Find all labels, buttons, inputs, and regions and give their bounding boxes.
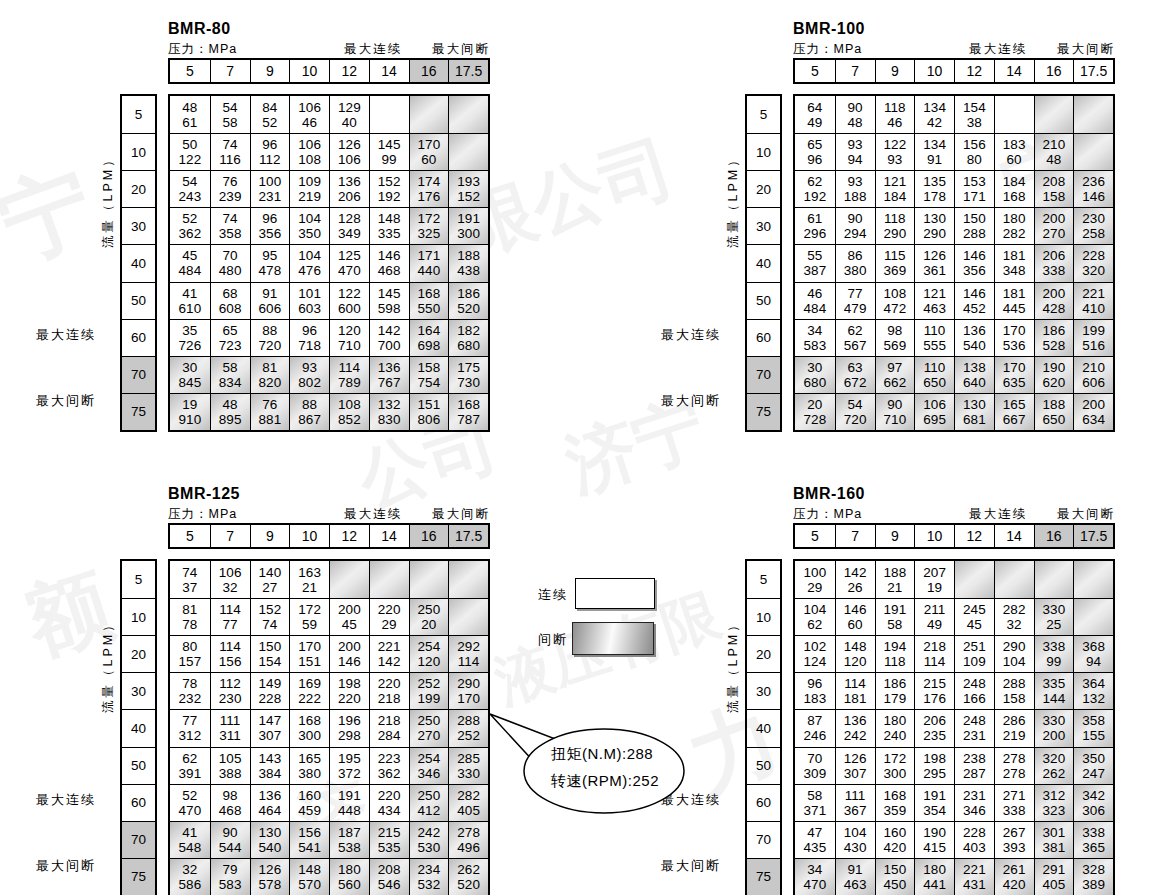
torque-value: 330 bbox=[1043, 602, 1066, 617]
data-cell: 54243 bbox=[170, 170, 210, 207]
data-cell: 14027 bbox=[250, 561, 290, 598]
data-cell: 98569 bbox=[875, 319, 915, 356]
speed-value: 120 bbox=[418, 654, 441, 669]
speed-value: 94 bbox=[848, 152, 863, 167]
torque-value: 221 bbox=[963, 862, 986, 877]
data-cell: 122600 bbox=[329, 282, 369, 319]
torque-value: 143 bbox=[259, 751, 282, 766]
flow-label-cell: 30 bbox=[122, 207, 155, 244]
speed-value: 320 bbox=[1082, 263, 1105, 278]
pressure-header-cell: 12 bbox=[954, 60, 994, 82]
data-cell: 152192 bbox=[369, 170, 409, 207]
speed-value: 388 bbox=[219, 766, 242, 781]
speed-value: 192 bbox=[804, 189, 827, 204]
data-cell: 24545 bbox=[954, 598, 994, 635]
flow-label-cell: 20 bbox=[122, 635, 155, 672]
data-cell: 184168 bbox=[994, 170, 1034, 207]
speed-value: 262 bbox=[1043, 766, 1066, 781]
torque-value: 128 bbox=[338, 211, 361, 226]
data-cell: 62567 bbox=[835, 319, 875, 356]
speed-value: 718 bbox=[298, 338, 321, 353]
legend-intermittent-label: 间断 bbox=[538, 631, 568, 649]
torque-value: 98 bbox=[223, 788, 238, 803]
speed-value: 578 bbox=[259, 877, 282, 892]
table-bmr-100: BMR-100 压力：MPa 最大连续 最大间断 5791012141617.5… bbox=[653, 20, 1115, 432]
data-cell: 148335 bbox=[369, 207, 409, 244]
flow-label-cell: 75 bbox=[122, 858, 155, 895]
speed-value: 380 bbox=[298, 766, 321, 781]
torque-value: 330 bbox=[1043, 713, 1066, 728]
data-cell: 200270 bbox=[1034, 207, 1074, 244]
torque-value: 191 bbox=[457, 211, 480, 226]
torque-value: 76 bbox=[262, 397, 277, 412]
data-cell: 120710 bbox=[329, 319, 369, 356]
torque-value: 122 bbox=[338, 286, 361, 301]
data-cell: 96356 bbox=[250, 207, 290, 244]
flow-label-cell: 20 bbox=[747, 635, 780, 672]
data-cell: 36894 bbox=[1073, 635, 1113, 672]
torque-value: 108 bbox=[884, 286, 907, 301]
data-cell: 221142 bbox=[369, 635, 409, 672]
torque-value: 114 bbox=[844, 676, 866, 691]
data-cell: 142700 bbox=[369, 319, 409, 356]
torque-value: 172 bbox=[298, 602, 321, 617]
speed-value: 309 bbox=[804, 766, 827, 781]
data-cell: 136206 bbox=[329, 170, 369, 207]
torque-value: 364 bbox=[1082, 676, 1105, 691]
speed-value: 789 bbox=[338, 375, 361, 390]
torque-value: 320 bbox=[1043, 751, 1066, 766]
torque-value: 180 bbox=[884, 713, 907, 728]
data-cell: 146452 bbox=[954, 282, 994, 319]
data-cell bbox=[1073, 96, 1113, 133]
data-cell: 165667 bbox=[994, 393, 1034, 430]
flow-label-cell: 10 bbox=[747, 133, 780, 170]
torque-value: 62 bbox=[807, 174, 822, 189]
speed-value: 109 bbox=[963, 654, 986, 669]
speed-value: 405 bbox=[1043, 877, 1066, 892]
speed-value: 60 bbox=[1007, 152, 1022, 167]
callout-speed-value: 转速(RPM):252 bbox=[551, 767, 659, 794]
torque-value: 106 bbox=[219, 565, 242, 580]
speed-value: 307 bbox=[259, 728, 282, 743]
data-cell: 169222 bbox=[289, 672, 329, 709]
torque-value: 220 bbox=[378, 602, 401, 617]
torque-value: 164 bbox=[418, 323, 441, 338]
speed-value: 362 bbox=[179, 226, 202, 241]
torque-value: 180 bbox=[923, 862, 946, 877]
data-cell: 126361 bbox=[914, 244, 954, 281]
data-cell: 186520 bbox=[448, 282, 488, 319]
torque-value: 88 bbox=[302, 397, 317, 412]
data-cell: 220218 bbox=[369, 672, 409, 709]
torque-value: 170 bbox=[418, 137, 441, 152]
flow-label-cell: 50 bbox=[122, 282, 155, 319]
speed-value: 218 bbox=[378, 691, 401, 706]
pressure-header-row: 5791012141617.5 bbox=[793, 523, 1115, 549]
data-cell: 70480 bbox=[210, 244, 250, 281]
speed-value: 349 bbox=[338, 226, 361, 241]
data-cell: 186179 bbox=[875, 672, 915, 709]
max-intermittent-label: 最大间断 bbox=[432, 41, 490, 58]
data-cell: 223362 bbox=[369, 747, 409, 784]
torque-value: 228 bbox=[1082, 248, 1105, 263]
pressure-header-cell: 16 bbox=[409, 525, 449, 547]
speed-value: 290 bbox=[884, 226, 907, 241]
speed-value: 650 bbox=[1043, 412, 1066, 427]
speed-value: 459 bbox=[298, 803, 321, 818]
speed-value: 338 bbox=[1003, 803, 1026, 818]
speed-value: 230 bbox=[219, 691, 242, 706]
speed-value: 700 bbox=[378, 338, 401, 353]
flow-label-cell: 5 bbox=[747, 561, 780, 598]
data-cell bbox=[1073, 598, 1113, 635]
data-cell: 11846 bbox=[875, 96, 915, 133]
speed-value: 452 bbox=[963, 301, 986, 316]
torque-value: 191 bbox=[923, 788, 946, 803]
torque-value: 234 bbox=[418, 862, 441, 877]
torque-value: 110 bbox=[924, 360, 946, 375]
data-cell bbox=[448, 598, 488, 635]
data-cell: 41548 bbox=[170, 821, 210, 858]
torque-value: 150 bbox=[259, 639, 282, 654]
data-cell: 10646 bbox=[289, 96, 329, 133]
torque-value: 261 bbox=[1003, 862, 1026, 877]
data-cell: 86380 bbox=[835, 244, 875, 281]
flow-label-cell: 5 bbox=[122, 96, 155, 133]
torque-value: 186 bbox=[1043, 323, 1066, 338]
data-cell: 335144 bbox=[1034, 672, 1074, 709]
speed-value: 157 bbox=[179, 654, 202, 669]
table-bmr-125: BMR-125 压力：MPa 最大连续 最大间断 5791012141617.5… bbox=[28, 485, 490, 895]
pressure-header-cell: 16 bbox=[1034, 525, 1074, 547]
data-cell: 21149 bbox=[914, 598, 954, 635]
speed-value: 470 bbox=[804, 877, 827, 892]
pressure-header-cell: 9 bbox=[250, 525, 290, 547]
speed-value: 600 bbox=[338, 301, 361, 316]
torque-value: 96 bbox=[262, 211, 277, 226]
pressure-header-cell: 5 bbox=[170, 60, 210, 82]
torque-value: 301 bbox=[1043, 825, 1066, 840]
torque-value: 90 bbox=[223, 825, 238, 840]
torque-value: 180 bbox=[338, 862, 361, 877]
data-cell: 30845 bbox=[170, 356, 210, 393]
data-cell: 160459 bbox=[289, 784, 329, 821]
data-cell: 33899 bbox=[1034, 635, 1074, 672]
torque-value: 142 bbox=[844, 565, 867, 580]
speed-value: 154 bbox=[259, 654, 282, 669]
torque-value: 200 bbox=[338, 602, 361, 617]
data-cell: 191300 bbox=[448, 207, 488, 244]
data-cell: 218284 bbox=[369, 709, 409, 746]
speed-value: 306 bbox=[1082, 803, 1105, 818]
speed-value: 122 bbox=[179, 152, 202, 167]
torque-value: 196 bbox=[338, 713, 361, 728]
pressure-header-cell: 16 bbox=[409, 60, 449, 82]
data-cell: 58371 bbox=[795, 784, 835, 821]
torque-value: 180 bbox=[1003, 211, 1026, 226]
flow-label-cell: 70 bbox=[747, 356, 780, 393]
speed-value: 672 bbox=[844, 375, 867, 390]
speed-value: 479 bbox=[844, 301, 867, 316]
pressure-header-cell: 12 bbox=[329, 60, 369, 82]
data-cell: 13491 bbox=[914, 133, 954, 170]
torque-value: 114 bbox=[339, 360, 361, 375]
torque-value: 242 bbox=[418, 825, 441, 840]
data-cell bbox=[329, 561, 369, 598]
speed-value: 46 bbox=[887, 115, 902, 130]
pressure-unit-label: 压力：MPa bbox=[793, 506, 862, 523]
speed-value: 228 bbox=[259, 691, 282, 706]
flow-label-cell: 50 bbox=[747, 282, 780, 319]
data-cell: 77479 bbox=[835, 282, 875, 319]
table-title: BMR-100 bbox=[793, 20, 865, 38]
torque-value: 248 bbox=[963, 713, 986, 728]
speed-value: 93 bbox=[887, 152, 902, 167]
speed-value: 569 bbox=[884, 338, 907, 353]
speed-value: 845 bbox=[179, 375, 202, 390]
torque-value: 135 bbox=[923, 174, 946, 189]
table-title: BMR-125 bbox=[168, 485, 240, 503]
data-cell: 28232 bbox=[994, 598, 1034, 635]
torque-value: 62 bbox=[848, 323, 863, 338]
torque-value: 188 bbox=[884, 565, 907, 580]
torque-value: 282 bbox=[1003, 602, 1026, 617]
torque-value: 168 bbox=[418, 286, 441, 301]
torque-value: 96 bbox=[302, 323, 317, 338]
speed-value: 346 bbox=[418, 766, 441, 781]
speed-value: 178 bbox=[923, 189, 946, 204]
torque-value: 207 bbox=[923, 565, 946, 580]
flow-label-cell: 70 bbox=[747, 821, 780, 858]
data-cell: 186528 bbox=[1034, 319, 1074, 356]
torque-value: 126 bbox=[844, 751, 867, 766]
data-cell bbox=[409, 561, 449, 598]
data-cell: 156541 bbox=[289, 821, 329, 858]
table-title: BMR-80 bbox=[168, 20, 231, 38]
torque-value: 80 bbox=[182, 639, 197, 654]
pressure-header-cell: 5 bbox=[170, 525, 210, 547]
data-cell: 6596 bbox=[795, 133, 835, 170]
data-cell: 97662 bbox=[875, 356, 915, 393]
speed-value: 59 bbox=[302, 617, 317, 632]
torque-value: 84 bbox=[262, 100, 277, 115]
speed-value: 720 bbox=[259, 338, 282, 353]
flow-label-cell: 70 bbox=[122, 356, 155, 393]
speed-value: 116 bbox=[219, 152, 241, 167]
torque-value: 86 bbox=[848, 248, 863, 263]
data-cell: 193152 bbox=[448, 170, 488, 207]
flow-label-column: 51020304050607075 bbox=[120, 94, 157, 432]
data-cell: 158754 bbox=[409, 356, 449, 393]
data-cell bbox=[1073, 561, 1113, 598]
data-cell: 15274 bbox=[250, 598, 290, 635]
speed-value: 99 bbox=[382, 152, 397, 167]
torque-value: 220 bbox=[378, 788, 401, 803]
data-cell: 14599 bbox=[369, 133, 409, 170]
data-cell: 200428 bbox=[1034, 282, 1074, 319]
speed-value: 29 bbox=[382, 617, 397, 632]
data-cell: 250412 bbox=[409, 784, 449, 821]
pressure-header-cell: 14 bbox=[369, 525, 409, 547]
data-cell: 221431 bbox=[954, 858, 994, 895]
speed-value: 468 bbox=[378, 263, 401, 278]
data-cell: 22029 bbox=[369, 598, 409, 635]
data-cell: 198220 bbox=[329, 672, 369, 709]
max-continuous-row-label: 最大连续 bbox=[661, 326, 721, 344]
torque-value: 210 bbox=[1082, 360, 1105, 375]
speed-value: 680 bbox=[457, 338, 480, 353]
speed-value: 380 bbox=[844, 263, 867, 278]
torque-value: 118 bbox=[884, 211, 906, 226]
data-cell: 242530 bbox=[409, 821, 449, 858]
speed-value: 220 bbox=[338, 691, 361, 706]
speed-value: 311 bbox=[219, 728, 241, 743]
torque-value: 262 bbox=[457, 862, 480, 877]
torque-value: 148 bbox=[378, 211, 401, 226]
torque-value: 223 bbox=[378, 751, 401, 766]
torque-value: 108 bbox=[338, 397, 361, 412]
torque-value: 54 bbox=[848, 397, 863, 412]
flow-label-column: 51020304050607075 bbox=[745, 94, 782, 432]
torque-value: 30 bbox=[182, 360, 197, 375]
speed-value: 583 bbox=[219, 877, 242, 892]
speed-value: 132 bbox=[1082, 691, 1105, 706]
speed-value: 243 bbox=[179, 189, 202, 204]
speed-value: 415 bbox=[923, 840, 946, 855]
speed-value: 284 bbox=[378, 728, 401, 743]
speed-value: 550 bbox=[418, 301, 441, 316]
speed-value: 323 bbox=[1043, 803, 1066, 818]
speed-value: 32 bbox=[223, 580, 238, 595]
data-cell: 114156 bbox=[210, 635, 250, 672]
data-cell: 148120 bbox=[835, 635, 875, 672]
data-cell: 191354 bbox=[914, 784, 954, 821]
speed-value: 335 bbox=[378, 226, 401, 241]
data-cell: 80157 bbox=[170, 635, 210, 672]
speed-value: 754 bbox=[418, 375, 441, 390]
speed-value: 58 bbox=[887, 617, 902, 632]
data-cell: 6449 bbox=[795, 96, 835, 133]
flow-label-cell: 20 bbox=[747, 170, 780, 207]
data-cell: 104430 bbox=[835, 821, 875, 858]
table-subheader: 压力：MPa 最大连续 最大间断 bbox=[793, 41, 1115, 57]
data-cell: 126307 bbox=[835, 747, 875, 784]
pressure-header-cell: 16 bbox=[1034, 60, 1074, 82]
speed-value: 662 bbox=[884, 375, 907, 390]
torque-value: 35 bbox=[182, 323, 197, 338]
data-cell: 146468 bbox=[369, 244, 409, 281]
torque-value: 70 bbox=[807, 751, 822, 766]
speed-value: 381 bbox=[1043, 840, 1066, 855]
speed-value: 219 bbox=[1003, 728, 1026, 743]
data-cell: 87246 bbox=[795, 709, 835, 746]
data-cell: 115369 bbox=[875, 244, 915, 281]
torque-value: 188 bbox=[1043, 397, 1066, 412]
speed-value: 544 bbox=[219, 840, 242, 855]
max-continuous-label: 最大连续 bbox=[344, 41, 402, 58]
data-cell: 90544 bbox=[210, 821, 250, 858]
data-cell: 15680 bbox=[954, 133, 994, 170]
speed-value: 124 bbox=[804, 654, 827, 669]
torque-value: 218 bbox=[923, 639, 946, 654]
torque-value: 221 bbox=[1082, 286, 1105, 301]
speed-value: 48 bbox=[848, 115, 863, 130]
data-cell: 252199 bbox=[409, 672, 449, 709]
torque-value: 358 bbox=[1082, 713, 1105, 728]
data-cell: 149228 bbox=[250, 672, 290, 709]
torque-value: 168 bbox=[884, 788, 907, 803]
data-cell: 194118 bbox=[875, 635, 915, 672]
data-cell: 78232 bbox=[170, 672, 210, 709]
data-cell: 45484 bbox=[170, 244, 210, 281]
data-cell: 88720 bbox=[250, 319, 290, 356]
torque-value: 146 bbox=[844, 602, 867, 617]
data-cell: 62391 bbox=[170, 747, 210, 784]
torque-value: 74 bbox=[223, 137, 238, 152]
data-cell: 195372 bbox=[329, 747, 369, 784]
speed-value: 32 bbox=[1007, 617, 1022, 632]
data-cell: 150288 bbox=[954, 207, 994, 244]
speed-value: 560 bbox=[338, 877, 361, 892]
torque-value: 368 bbox=[1082, 639, 1105, 654]
torque-value: 19 bbox=[182, 397, 197, 412]
torque-value: 215 bbox=[923, 676, 946, 691]
torque-value: 168 bbox=[298, 713, 321, 728]
data-cell: 17259 bbox=[289, 598, 329, 635]
speed-value: 496 bbox=[457, 840, 480, 855]
flow-label-cell: 40 bbox=[747, 244, 780, 281]
data-cell: 114789 bbox=[329, 356, 369, 393]
data-cell: 150450 bbox=[875, 858, 915, 895]
speed-value: 440 bbox=[418, 263, 441, 278]
torque-value: 138 bbox=[963, 360, 986, 375]
torque-value: 20 bbox=[807, 397, 822, 412]
data-cell: 145598 bbox=[369, 282, 409, 319]
speed-value: 730 bbox=[457, 375, 480, 390]
speed-value: 300 bbox=[884, 766, 907, 781]
torque-value: 100 bbox=[259, 174, 282, 189]
speed-value: 20 bbox=[421, 617, 436, 632]
data-cell: 338365 bbox=[1073, 821, 1113, 858]
data-cell: 286219 bbox=[994, 709, 1034, 746]
pressure-header-cell: 7 bbox=[835, 60, 875, 82]
data-cell: 9048 bbox=[835, 96, 875, 133]
speed-value: 806 bbox=[418, 412, 441, 427]
torque-value: 115 bbox=[884, 248, 906, 263]
torque-value: 78 bbox=[182, 676, 197, 691]
data-cell: 55387 bbox=[795, 244, 835, 281]
torque-value: 150 bbox=[884, 862, 907, 877]
flow-label-cell: 60 bbox=[747, 784, 780, 821]
torque-value: 125 bbox=[338, 248, 361, 263]
speed-value: 910 bbox=[179, 412, 202, 427]
torque-value: 54 bbox=[223, 100, 238, 115]
speed-value: 104 bbox=[1003, 654, 1026, 669]
torque-value: 228 bbox=[963, 825, 986, 840]
torque-value: 136 bbox=[963, 323, 986, 338]
speed-value: 176 bbox=[923, 691, 946, 706]
speed-value: 181 bbox=[844, 691, 867, 706]
pressure-header-cell: 17.5 bbox=[1073, 525, 1113, 547]
max-intermittent-label: 最大间断 bbox=[1057, 506, 1115, 523]
torque-value: 165 bbox=[1003, 397, 1026, 412]
speed-value: 270 bbox=[1043, 226, 1066, 241]
data-cell: 14226 bbox=[835, 561, 875, 598]
torque-value: 106 bbox=[298, 100, 321, 115]
data-cell: 130290 bbox=[914, 207, 954, 244]
speed-value: 91 bbox=[927, 152, 942, 167]
